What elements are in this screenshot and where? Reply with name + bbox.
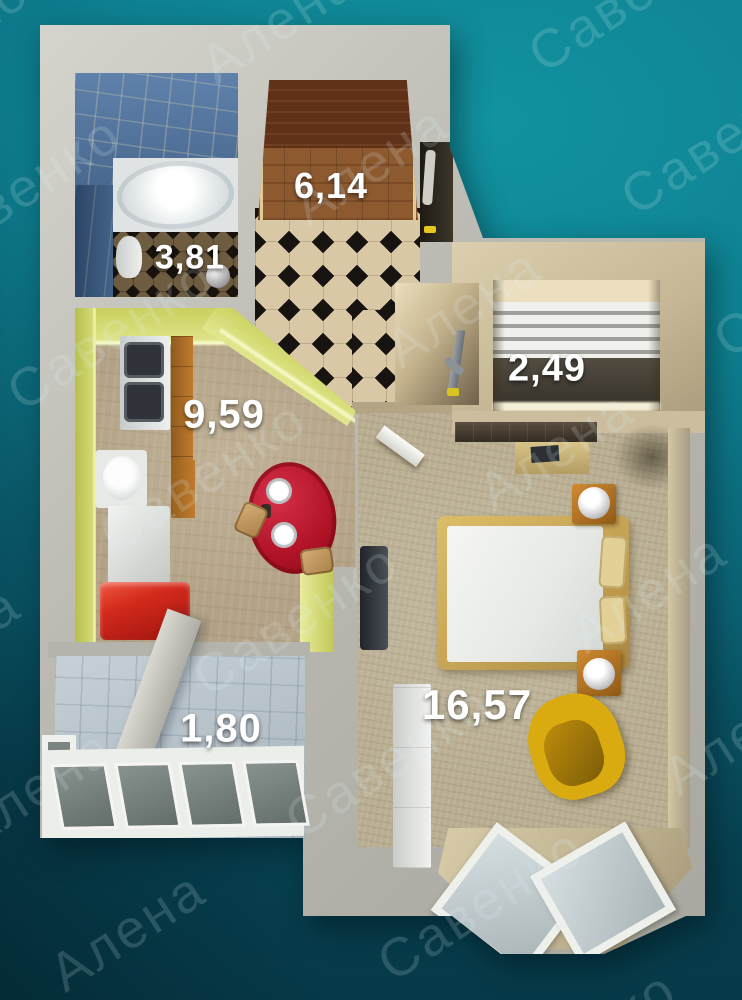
utility-alcove — [395, 283, 479, 405]
table-lamp — [583, 658, 615, 690]
balcony-window-pane — [178, 761, 246, 828]
storage-back-wall — [493, 280, 660, 302]
light-strip-icon — [260, 80, 263, 220]
armchair-seat — [538, 714, 611, 792]
balcony-window-band — [42, 746, 304, 841]
shoe-item — [424, 226, 436, 233]
refrigerator — [108, 506, 170, 586]
pillow — [598, 535, 628, 589]
floorplan-render: 6,14 3,81 9,59 2,49 16,57 1,80 Алена Сав… — [0, 0, 742, 1000]
pillow — [599, 595, 627, 644]
room-label-storage: 2,49 — [508, 348, 586, 391]
table-lamp — [578, 487, 610, 519]
room-label-hallway: 6,14 — [294, 165, 368, 207]
gas-valve — [447, 388, 459, 396]
room-label-bedroom: 16,57 — [422, 681, 532, 729]
kitchen-cabinet — [171, 460, 195, 518]
balcony-window-pane — [114, 762, 182, 829]
toilet — [116, 236, 142, 278]
apartment-plan — [0, 0, 742, 1000]
storage-shadow — [648, 280, 660, 411]
bedroom-right-wall — [668, 428, 690, 848]
room-label-bathroom: 3,81 — [155, 239, 225, 278]
entry-door-wood — [258, 80, 418, 148]
balcony-window-pane — [242, 760, 310, 827]
bathroom-left-wall — [75, 185, 115, 297]
storage-shadow — [493, 280, 505, 411]
bed-mattress — [447, 526, 603, 662]
room-label-balcony: 1,80 — [180, 707, 262, 752]
washing-machine-lid — [103, 456, 141, 500]
wardrobe-top — [455, 422, 597, 442]
room-label-kitchen: 9,59 — [183, 393, 265, 438]
storage-light-glow — [493, 402, 660, 411]
balcony-window-pane — [50, 763, 118, 830]
light-strip-icon — [413, 80, 416, 220]
plate — [271, 522, 297, 548]
sink-basin — [124, 342, 164, 378]
tv-panel — [360, 546, 388, 650]
sink-basin — [124, 382, 164, 422]
chair — [299, 546, 334, 576]
apartment-silhouette — [0, 0, 742, 1000]
laptop — [530, 445, 559, 463]
kitchen-wall — [75, 308, 95, 652]
plate — [266, 478, 292, 504]
